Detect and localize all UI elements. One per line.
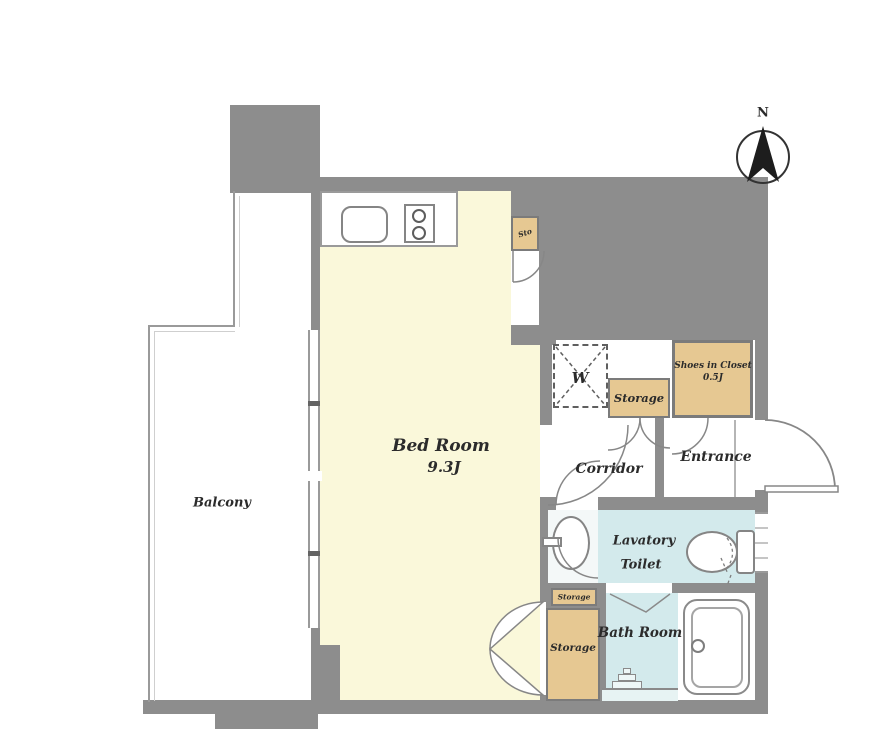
washer-label: W: [572, 369, 589, 387]
north-arrow-icon: [747, 126, 779, 182]
entrance-door-arc: [765, 420, 835, 490]
wall-pillar-top-left: [230, 105, 320, 193]
wall-west-corner: [311, 645, 340, 701]
bedroom-size-label: 9.3J: [427, 458, 460, 476]
wall-corridor-lavatory-right: [598, 497, 755, 510]
balcony-edge: [148, 325, 150, 702]
wall-east-mid: [755, 490, 768, 512]
bath-faucet-top: [623, 668, 631, 674]
wall-east-upper: [755, 340, 768, 420]
window-tick: [308, 401, 320, 406]
bathtub-drain-icon: [691, 639, 705, 653]
bathroom-label: Bath Room: [598, 625, 682, 641]
stove-burner-icon: [412, 226, 426, 240]
wall-beside-sto: [538, 217, 556, 325]
window-center-break: [306, 471, 322, 481]
wall-bedroom-corridor: [540, 345, 552, 425]
basin-faucet: [542, 537, 562, 547]
north-label: N: [757, 106, 769, 121]
storage-room-box: [546, 608, 600, 701]
toilet-bowl: [686, 531, 738, 573]
balcony-edge: [233, 191, 235, 327]
window-mullion: [755, 527, 768, 529]
window-mullion: [755, 542, 768, 544]
balcony-edge-inner: [154, 331, 235, 332]
wall-corridor-entrance: [655, 418, 664, 497]
toilet-tank: [736, 530, 755, 574]
bath-door-gap: [606, 583, 672, 593]
bedroom-label: Bed Room: [392, 436, 490, 456]
wall-west-upper: [311, 191, 320, 330]
corridor-label: Corridor: [575, 461, 642, 477]
entrance-door-panel: [765, 486, 838, 492]
bath-faucet-mid: [618, 674, 636, 681]
shoes-closet-label: Shoes in Closet: [674, 361, 752, 371]
wall-below-sto: [511, 325, 556, 345]
stove-burner-icon: [412, 209, 426, 223]
shoes-closet-size-label: 0.5J: [703, 373, 723, 383]
sto-door-recess: [511, 251, 539, 325]
wall-above-sto: [511, 177, 556, 219]
wall-corridor-lavatory-left: [540, 497, 556, 510]
storage-small-label: Storage: [558, 593, 591, 602]
bath-counter: [602, 688, 678, 701]
wall-bottom: [143, 700, 768, 714]
kitchen-sink: [341, 206, 388, 243]
wall-mass-top-right: [540, 177, 768, 340]
storage-door-left-arc: [608, 418, 640, 450]
lavatory-label: Lavatory: [613, 534, 676, 549]
compass-circle: [737, 131, 789, 183]
wall-bottom-step: [215, 714, 318, 729]
balcony-edge: [148, 325, 235, 327]
entrance-label: Entrance: [680, 449, 751, 465]
floor-plan: Balcony Bed Room 9.3J Corridor Entrance …: [0, 0, 873, 750]
window-tick: [308, 551, 320, 556]
window-mullion: [755, 557, 768, 559]
storage-room-label: Storage: [550, 642, 596, 654]
storage-hall-label: Storage: [614, 391, 664, 405]
toilet-label: Toilet: [620, 558, 661, 573]
balcony-edge-inner: [154, 331, 155, 701]
bath-faucet-base: [612, 681, 642, 689]
balcony-label: Balcony: [193, 496, 251, 511]
balcony-edge-inner: [239, 196, 240, 327]
